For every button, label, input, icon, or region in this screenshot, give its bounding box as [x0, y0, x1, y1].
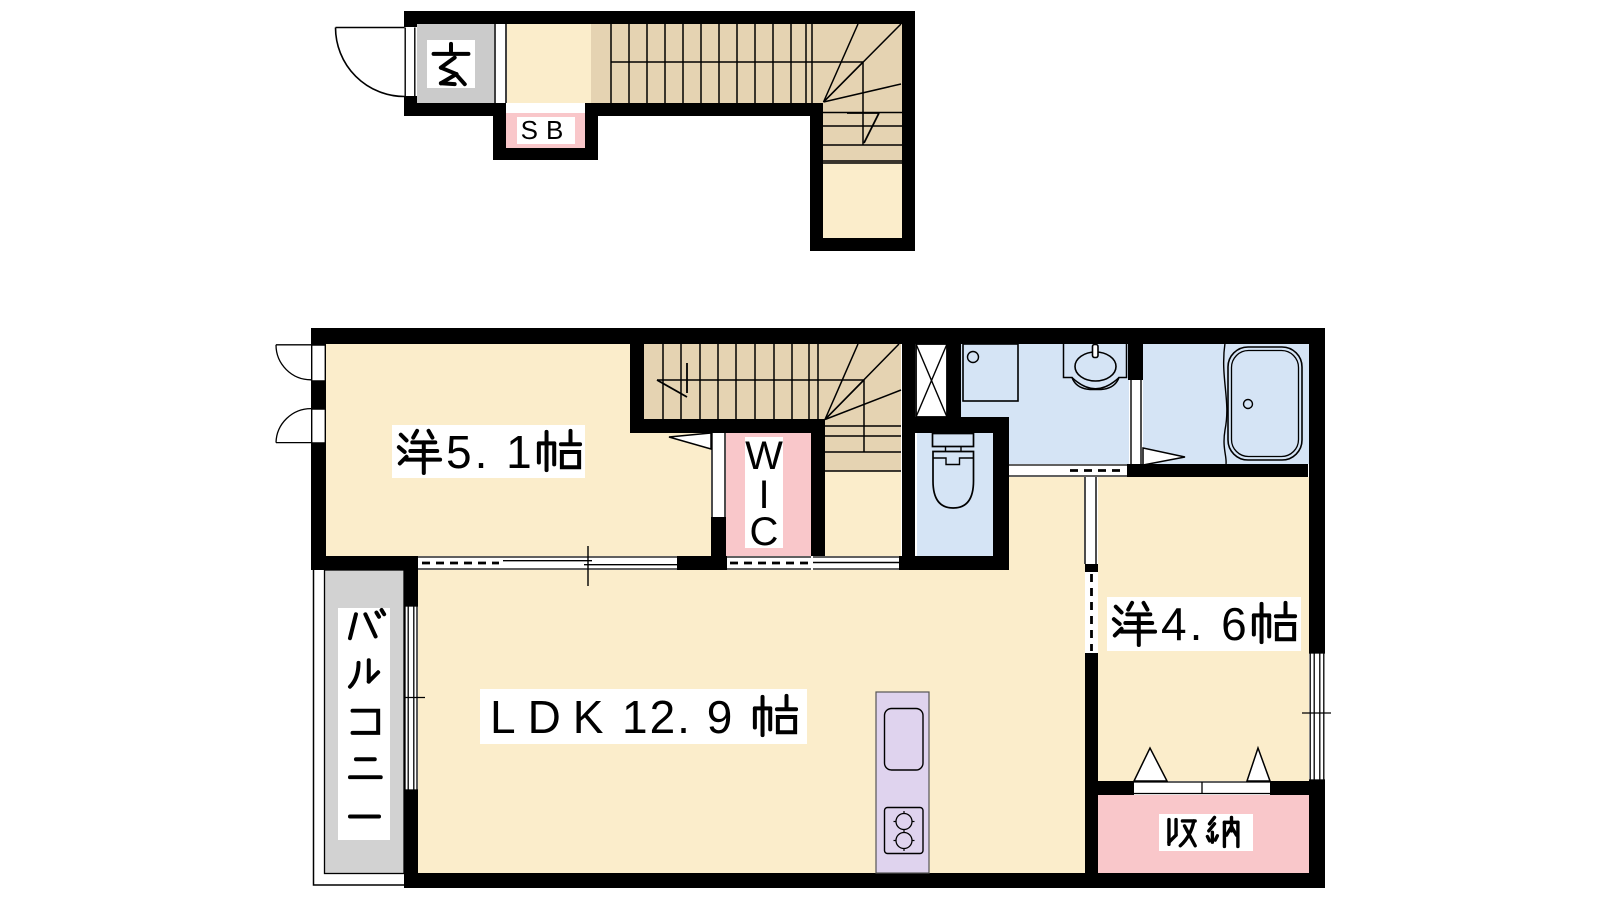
svg-text:SB: SB	[521, 115, 572, 145]
svg-text:LDK: LDK	[490, 691, 615, 743]
svg-text:C: C	[750, 510, 779, 554]
svg-text:5. 1: 5. 1	[446, 426, 535, 478]
svg-text:4. 6: 4. 6	[1161, 598, 1250, 650]
svg-text:W: W	[745, 434, 783, 478]
svg-text:12. 9: 12. 9	[622, 691, 734, 743]
